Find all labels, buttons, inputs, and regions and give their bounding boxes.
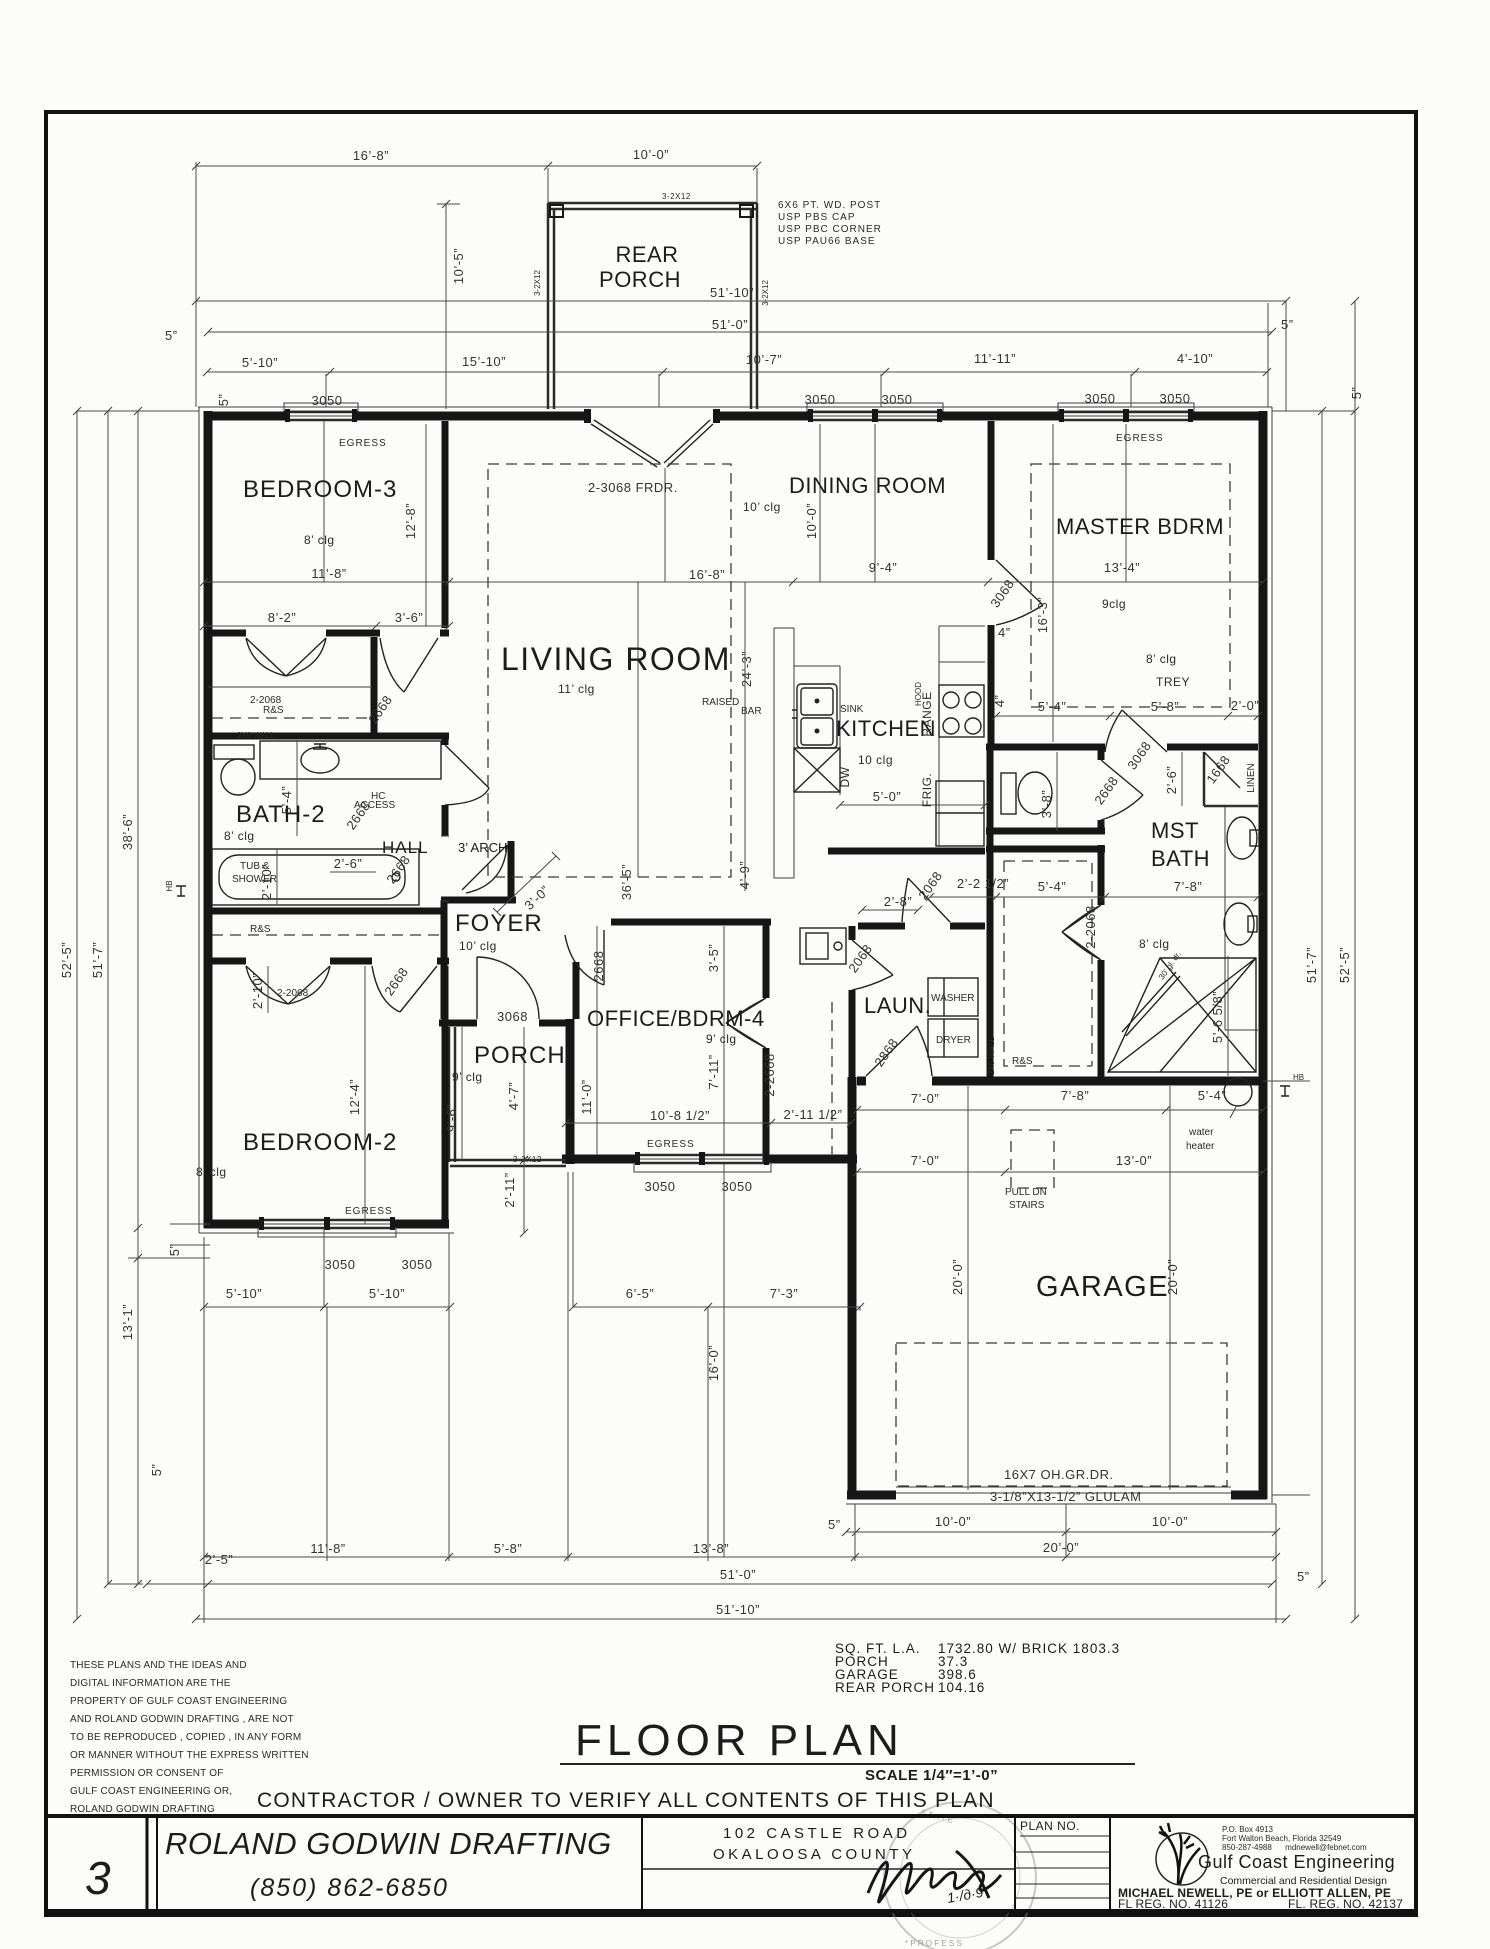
svg-text:Fort Walton Beach, Florida 325: Fort Walton Beach, Florida 32549 xyxy=(1222,1834,1342,1843)
svg-text:16’-8”: 16’-8” xyxy=(353,148,389,163)
svg-text:20’-0”: 20’-0” xyxy=(950,1259,965,1295)
svg-text:3050: 3050 xyxy=(722,1179,753,1194)
svg-text:52’-5”: 52’-5” xyxy=(1337,947,1352,983)
svg-text:3-2X12: 3-2X12 xyxy=(662,192,691,201)
svg-text:3050: 3050 xyxy=(805,392,836,407)
svg-text:STAIRS: STAIRS xyxy=(1009,1200,1045,1211)
svg-text:10’ clg: 10’ clg xyxy=(743,500,781,514)
svg-text:51’-7”: 51’-7” xyxy=(90,942,105,978)
svg-text:3’-5”: 3’-5” xyxy=(706,944,721,973)
svg-text:DINING ROOM: DINING ROOM xyxy=(789,473,946,498)
svg-text:THESE PLANS AND THE IDEAS AND: THESE PLANS AND THE IDEAS AND xyxy=(70,1660,247,1671)
svg-text:3050: 3050 xyxy=(1085,391,1116,406)
svg-text:5’-8”: 5’-8” xyxy=(1151,699,1180,714)
svg-text:10’-7”: 10’-7” xyxy=(746,352,782,367)
svg-text:LINEN: LINEN xyxy=(1246,763,1257,792)
svg-text:10’-0”: 10’-0” xyxy=(935,1514,971,1529)
svg-text:16’-3”: 16’-3” xyxy=(1035,597,1050,633)
svg-text:3’-8”: 3’-8” xyxy=(1039,790,1054,819)
svg-text:2’-0”: 2’-0” xyxy=(1231,698,1260,713)
svg-text:20’-0”: 20’-0” xyxy=(1165,1259,1180,1295)
svg-text:BATH: BATH xyxy=(1151,846,1210,871)
svg-text:20’-0”: 20’-0” xyxy=(1043,1540,1079,1555)
svg-text:12’-4”: 12’-4” xyxy=(347,1079,362,1115)
svg-text:MST: MST xyxy=(1151,818,1199,843)
svg-text:2’-11”: 2’-11” xyxy=(502,1172,517,1207)
svg-text:HB: HB xyxy=(165,880,174,891)
svg-text:3050: 3050 xyxy=(1160,391,1191,406)
svg-text:10 clg: 10 clg xyxy=(858,753,893,767)
svg-text:16’-8”: 16’-8” xyxy=(689,567,725,582)
svg-text:13’-0”: 13’-0” xyxy=(1116,1153,1152,1168)
svg-text:5’-10”: 5’-10” xyxy=(226,1286,262,1301)
svg-text:11’-8”: 11’-8” xyxy=(310,1541,345,1556)
svg-text:10’-0”: 10’-0” xyxy=(804,503,819,539)
svg-text:USP PBS CAP: USP PBS CAP xyxy=(778,212,856,223)
svg-text:10’-5”: 10’-5” xyxy=(451,248,466,284)
svg-text:11’-8”: 11’-8” xyxy=(311,566,346,581)
svg-text:2-2668: 2-2668 xyxy=(762,1053,777,1096)
svg-text:8’-2”: 8’-2” xyxy=(268,610,297,625)
svg-text:TREY: TREY xyxy=(1156,675,1190,689)
svg-text:2’-10”: 2’-10” xyxy=(250,973,265,1009)
svg-text:8’ clg: 8’ clg xyxy=(196,1165,227,1179)
svg-text:FL. REG. NO. 42137: FL. REG. NO. 42137 xyxy=(1288,1897,1403,1911)
svg-text:2-3068 FRDR.: 2-3068 FRDR. xyxy=(588,480,678,495)
svg-text:Gulf Coast Engineering: Gulf Coast Engineering xyxy=(1198,1852,1395,1872)
svg-text:10’-0”: 10’-0” xyxy=(633,147,669,162)
svg-text:EGRESS: EGRESS xyxy=(1116,433,1164,444)
svg-text:9clg: 9clg xyxy=(1102,597,1126,611)
svg-text:EGRESS: EGRESS xyxy=(339,438,387,449)
svg-text:24’-3”: 24’-3” xyxy=(739,651,754,687)
svg-text:3050: 3050 xyxy=(882,392,913,407)
svg-text:4’-10”: 4’-10” xyxy=(1177,351,1213,366)
svg-text:FOYER: FOYER xyxy=(455,910,543,937)
svg-text:3050: 3050 xyxy=(312,393,343,408)
svg-text:SCALE 1/4″=1’-0”: SCALE 1/4″=1’-0” xyxy=(865,1767,998,1784)
svg-text:HOOD: HOOD xyxy=(914,682,923,706)
svg-text:5’-6 5/8”: 5’-6 5/8” xyxy=(1210,991,1225,1043)
svg-text:REAR: REAR xyxy=(615,242,678,267)
svg-text:3’-6”: 3’-6” xyxy=(395,610,424,625)
svg-text:BAR: BAR xyxy=(741,706,762,717)
svg-text:11’-0”: 11’-0” xyxy=(579,1079,594,1114)
svg-text:9’ clg: 9’ clg xyxy=(452,1070,483,1084)
svg-text:9’-4”: 9’-4” xyxy=(869,560,898,575)
svg-text:TO BE REPRODUCED , COPIED , IN: TO BE REPRODUCED , COPIED , IN ANY FORM xyxy=(70,1732,301,1743)
svg-text:2’-10”: 2’-10” xyxy=(259,864,274,900)
svg-text:2’-2 1/2”: 2’-2 1/2” xyxy=(957,876,1009,891)
svg-text:R&S: R&S xyxy=(263,705,284,716)
svg-text:BEDROOM-3: BEDROOM-3 xyxy=(243,476,397,503)
svg-text:PORCH: PORCH xyxy=(474,1042,566,1069)
svg-text:EGRESS: EGRESS xyxy=(345,1206,393,1217)
svg-text:DIGITAL INFORMATION ARE THE: DIGITAL INFORMATION ARE THE xyxy=(70,1678,231,1689)
svg-text:850-287-4988 mdnewell@feb: 850-287-4988 mdnewell@febnet.com xyxy=(1222,1843,1367,1852)
svg-text:REAR PORCH: REAR PORCH xyxy=(835,1680,935,1695)
svg-text:5”: 5” xyxy=(1349,387,1364,400)
svg-text:USP PAU66 BASE: USP PAU66 BASE xyxy=(778,236,876,247)
svg-text:2-2068: 2-2068 xyxy=(1083,905,1098,948)
svg-text:13’-4”: 13’-4” xyxy=(1104,560,1140,575)
svg-text:2’-5”: 2’-5” xyxy=(205,1552,234,1567)
svg-text:2’-6”: 2’-6” xyxy=(1164,766,1179,795)
svg-text:36’-5”: 36’-5” xyxy=(619,864,634,900)
svg-text:HALL: HALL xyxy=(382,838,429,857)
svg-text:GULF COAST ENGINEERING OR,: GULF COAST ENGINEERING OR, xyxy=(70,1786,232,1797)
svg-text:5”: 5” xyxy=(167,1244,182,1257)
svg-text:7’-8”: 7’-8” xyxy=(1174,879,1203,894)
svg-text:10’-8 1/2”: 10’-8 1/2” xyxy=(650,1108,710,1123)
svg-text:3’ ARCH: 3’ ARCH xyxy=(458,840,507,855)
svg-text:52’-5”: 52’-5” xyxy=(59,942,74,978)
svg-text:16’-0”: 16’-0” xyxy=(706,1345,721,1381)
svg-text:* P R O F E S S: * P R O F E S S xyxy=(905,1939,962,1948)
svg-text:PULL DN: PULL DN xyxy=(1005,1187,1047,1198)
svg-text:51’-0”: 51’-0” xyxy=(712,317,748,332)
svg-text:heater: heater xyxy=(1186,1141,1215,1152)
svg-text:2’-8”: 2’-8” xyxy=(884,894,913,909)
svg-text:3-2X12: 3-2X12 xyxy=(761,280,770,306)
svg-text:12’-8”: 12’-8” xyxy=(403,503,418,539)
svg-text:5’-4”: 5’-4” xyxy=(1038,879,1067,894)
svg-text:8’ clg: 8’ clg xyxy=(224,829,255,843)
svg-text:SINK: SINK xyxy=(840,704,864,715)
svg-text:4’-7”: 4’-7” xyxy=(506,1082,521,1111)
svg-text:5”: 5” xyxy=(149,1464,164,1477)
svg-text:7’-0”: 7’-0” xyxy=(911,1153,940,1168)
svg-text:water: water xyxy=(1188,1127,1214,1138)
svg-text:3050: 3050 xyxy=(645,1179,676,1194)
svg-text:5’-4”: 5’-4” xyxy=(1198,1088,1227,1103)
svg-text:51’-7”: 51’-7” xyxy=(1304,947,1319,983)
svg-text:38’-6”: 38’-6” xyxy=(120,814,135,850)
svg-text:5’-0”: 5’-0” xyxy=(873,789,902,804)
svg-text:FRIG.: FRIG. xyxy=(920,773,934,808)
svg-text:OKALOOSA COUNTY: OKALOOSA COUNTY xyxy=(713,1846,916,1863)
svg-text:51’-0”: 51’-0” xyxy=(720,1567,756,1582)
svg-text:WASHER: WASHER xyxy=(931,993,975,1004)
svg-text:LIVING ROOM: LIVING ROOM xyxy=(501,641,731,677)
svg-text:2’-11 1/2”: 2’-11 1/2” xyxy=(784,1107,843,1122)
svg-text:8’ clg: 8’ clg xyxy=(1139,937,1170,951)
svg-text:PROPERTY OF GULF COAST ENGINEE: PROPERTY OF GULF COAST ENGINEERING xyxy=(70,1696,287,1707)
svg-text:2X6 WALL: 2X6 WALL xyxy=(987,1036,996,1074)
svg-text:BEDROOM-2: BEDROOM-2 xyxy=(243,1129,397,1156)
svg-text:2-2068: 2-2068 xyxy=(250,695,282,706)
svg-text:5’-4”: 5’-4” xyxy=(279,786,294,815)
svg-text:RAISED: RAISED xyxy=(702,697,739,708)
svg-text:16X7 OH.GR.DR.: 16X7 OH.GR.DR. xyxy=(1004,1467,1114,1482)
svg-text:8’ clg: 8’ clg xyxy=(1146,652,1177,666)
svg-text:2668: 2668 xyxy=(591,951,606,982)
svg-text:CONTRACTOR / OWNER TO VERIFY A: CONTRACTOR / OWNER TO VERIFY ALL CONTENT… xyxy=(257,1789,995,1812)
svg-text:HB: HB xyxy=(1293,1073,1304,1082)
svg-text:5’-8”: 5’-8” xyxy=(494,1541,523,1556)
svg-text:3: 3 xyxy=(85,1852,111,1904)
svg-text:5”: 5” xyxy=(216,394,231,407)
svg-text:OR MANNER WITHOUT THE EXPRESS: OR MANNER WITHOUT THE EXPRESS WRITTEN xyxy=(70,1750,309,1761)
svg-text:4”: 4” xyxy=(992,695,1007,708)
svg-text:OFFICE/BDRM-4: OFFICE/BDRM-4 xyxy=(587,1006,765,1031)
svg-text:PERMISSION OR CONSENT OF: PERMISSION OR CONSENT OF xyxy=(70,1768,224,1779)
svg-text:P.O. Box 4913: P.O. Box 4913 xyxy=(1222,1825,1274,1834)
svg-text:(850) 862-6850: (850) 862-6850 xyxy=(250,1874,449,1902)
svg-text:51’-10”: 51’-10” xyxy=(710,285,754,300)
svg-text:4”: 4” xyxy=(998,625,1011,640)
svg-text:USP PBC CORNER: USP PBC CORNER xyxy=(778,224,882,235)
svg-text:GARAGE: GARAGE xyxy=(1036,1271,1169,1303)
svg-text:2X6 WALL: 2X6 WALL xyxy=(237,731,275,740)
svg-text:11’ clg: 11’ clg xyxy=(558,682,595,696)
svg-text:5”: 5” xyxy=(165,328,178,343)
svg-text:ROLAND GODWIN DRAFTING: ROLAND GODWIN DRAFTING xyxy=(165,1826,612,1861)
svg-text:9’-6”: 9’-6” xyxy=(444,1104,459,1133)
svg-text:11’-11”: 11’-11” xyxy=(974,351,1016,366)
svg-text:R&S: R&S xyxy=(250,924,271,935)
svg-text:2’-6”: 2’-6” xyxy=(334,856,363,871)
svg-text:2-2068: 2-2068 xyxy=(277,988,309,999)
svg-text:5’-10”: 5’-10” xyxy=(369,1286,405,1301)
svg-text:5’-10”: 5’-10” xyxy=(242,355,278,370)
svg-text:3050: 3050 xyxy=(402,1257,433,1272)
svg-text:3050: 3050 xyxy=(325,1257,356,1272)
svg-text:6X6 PT. WD. POST: 6X6 PT. WD. POST xyxy=(778,200,881,211)
svg-text:MASTER BDRM: MASTER BDRM xyxy=(1056,514,1224,539)
svg-text:DRYER: DRYER xyxy=(936,1035,971,1046)
svg-text:5’-4”: 5’-4” xyxy=(1038,699,1067,714)
svg-text:3068: 3068 xyxy=(497,1009,528,1024)
svg-text:7’-8”: 7’-8” xyxy=(1061,1088,1090,1103)
svg-text:PLAN NO.: PLAN NO. xyxy=(1020,1819,1080,1833)
svg-text:3-2X12: 3-2X12 xyxy=(513,1155,542,1164)
svg-text:3-2X12: 3-2X12 xyxy=(533,270,542,296)
svg-text:10’ clg: 10’ clg xyxy=(459,939,497,953)
svg-text:4’-9”: 4’-9” xyxy=(737,861,752,890)
svg-text:104.16: 104.16 xyxy=(938,1680,985,1695)
svg-text:13’-8”: 13’-8” xyxy=(693,1541,729,1556)
svg-text:10’-0”: 10’-0” xyxy=(1152,1514,1188,1529)
svg-text:FL REG. NO. 41126: FL REG. NO. 41126 xyxy=(1118,1897,1228,1911)
svg-text:102 CASTLE ROAD: 102 CASTLE ROAD xyxy=(723,1825,911,1842)
svg-text:ROLAND GODWIN DRAFTING: ROLAND GODWIN DRAFTING xyxy=(70,1804,215,1815)
svg-text:13’-1”: 13’-1” xyxy=(120,1304,135,1340)
svg-text:15’-10”: 15’-10” xyxy=(462,354,506,369)
svg-text:3-1/8”X13-1/2” GLULAM: 3-1/8”X13-1/2” GLULAM xyxy=(990,1489,1141,1504)
svg-text:LAUN.: LAUN. xyxy=(864,993,931,1018)
svg-text:5”: 5” xyxy=(1281,317,1294,332)
svg-text:FLOOR PLAN: FLOOR PLAN xyxy=(575,1716,904,1765)
svg-text:7’-0”: 7’-0” xyxy=(911,1091,940,1106)
svg-text:AND ROLAND GODWIN DRAFTING , A: AND ROLAND GODWIN DRAFTING , ARE NOT xyxy=(70,1714,294,1725)
svg-text:PORCH: PORCH xyxy=(599,267,681,292)
svg-text:51’-10”: 51’-10” xyxy=(716,1602,760,1617)
svg-text:9’ clg: 9’ clg xyxy=(706,1032,737,1046)
svg-text:5”: 5” xyxy=(828,1517,841,1532)
svg-text:DW: DW xyxy=(838,766,852,787)
svg-text:EGRESS: EGRESS xyxy=(647,1139,695,1150)
svg-text:7’-11”: 7’-11” xyxy=(706,1054,721,1089)
svg-text:7’-3”: 7’-3” xyxy=(770,1286,799,1301)
svg-text:6’-5”: 6’-5” xyxy=(626,1286,655,1301)
svg-text:8’ clg: 8’ clg xyxy=(304,533,335,547)
svg-text:5”: 5” xyxy=(1297,1569,1310,1584)
svg-text:R&S: R&S xyxy=(1012,1056,1033,1067)
